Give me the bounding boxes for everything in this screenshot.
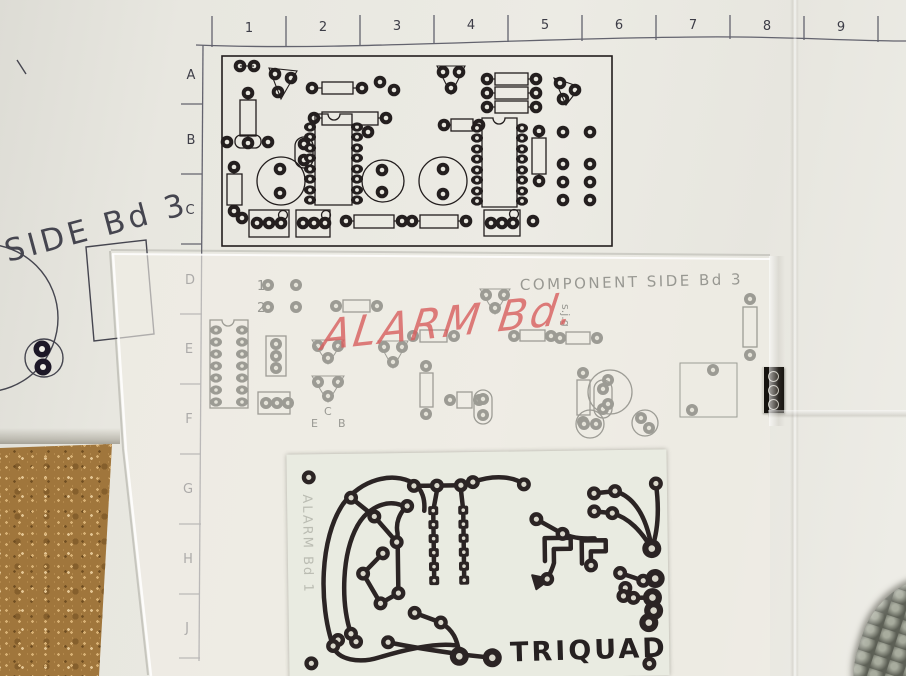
paper-edge-shadow xyxy=(0,428,120,444)
trace-sheet-edge-label: ALARM Bd 1 xyxy=(299,494,315,593)
transistor-label-e: E xyxy=(311,417,318,430)
traces xyxy=(322,474,660,661)
paper-crease-horizontal xyxy=(768,410,906,418)
transistor-label-b: B xyxy=(338,417,346,430)
paper-fold-crease xyxy=(790,0,799,676)
faded-ic xyxy=(210,320,248,408)
handwriting-red: ALARM Bd. xyxy=(316,284,580,361)
trace-artwork-sheet: TRIQUAD ALARM Bd 1 xyxy=(286,449,669,676)
pad-label-2: 2 xyxy=(257,301,265,316)
sheet-edge-highlight xyxy=(769,256,785,426)
pad-label-1: 1 xyxy=(257,279,265,294)
trace-sheet-brand: TRIQUAD xyxy=(510,633,669,669)
transistor-label-c: C xyxy=(324,405,332,418)
photo-canvas: SIDE Bd 3 1 2 3 4 xyxy=(0,0,906,676)
